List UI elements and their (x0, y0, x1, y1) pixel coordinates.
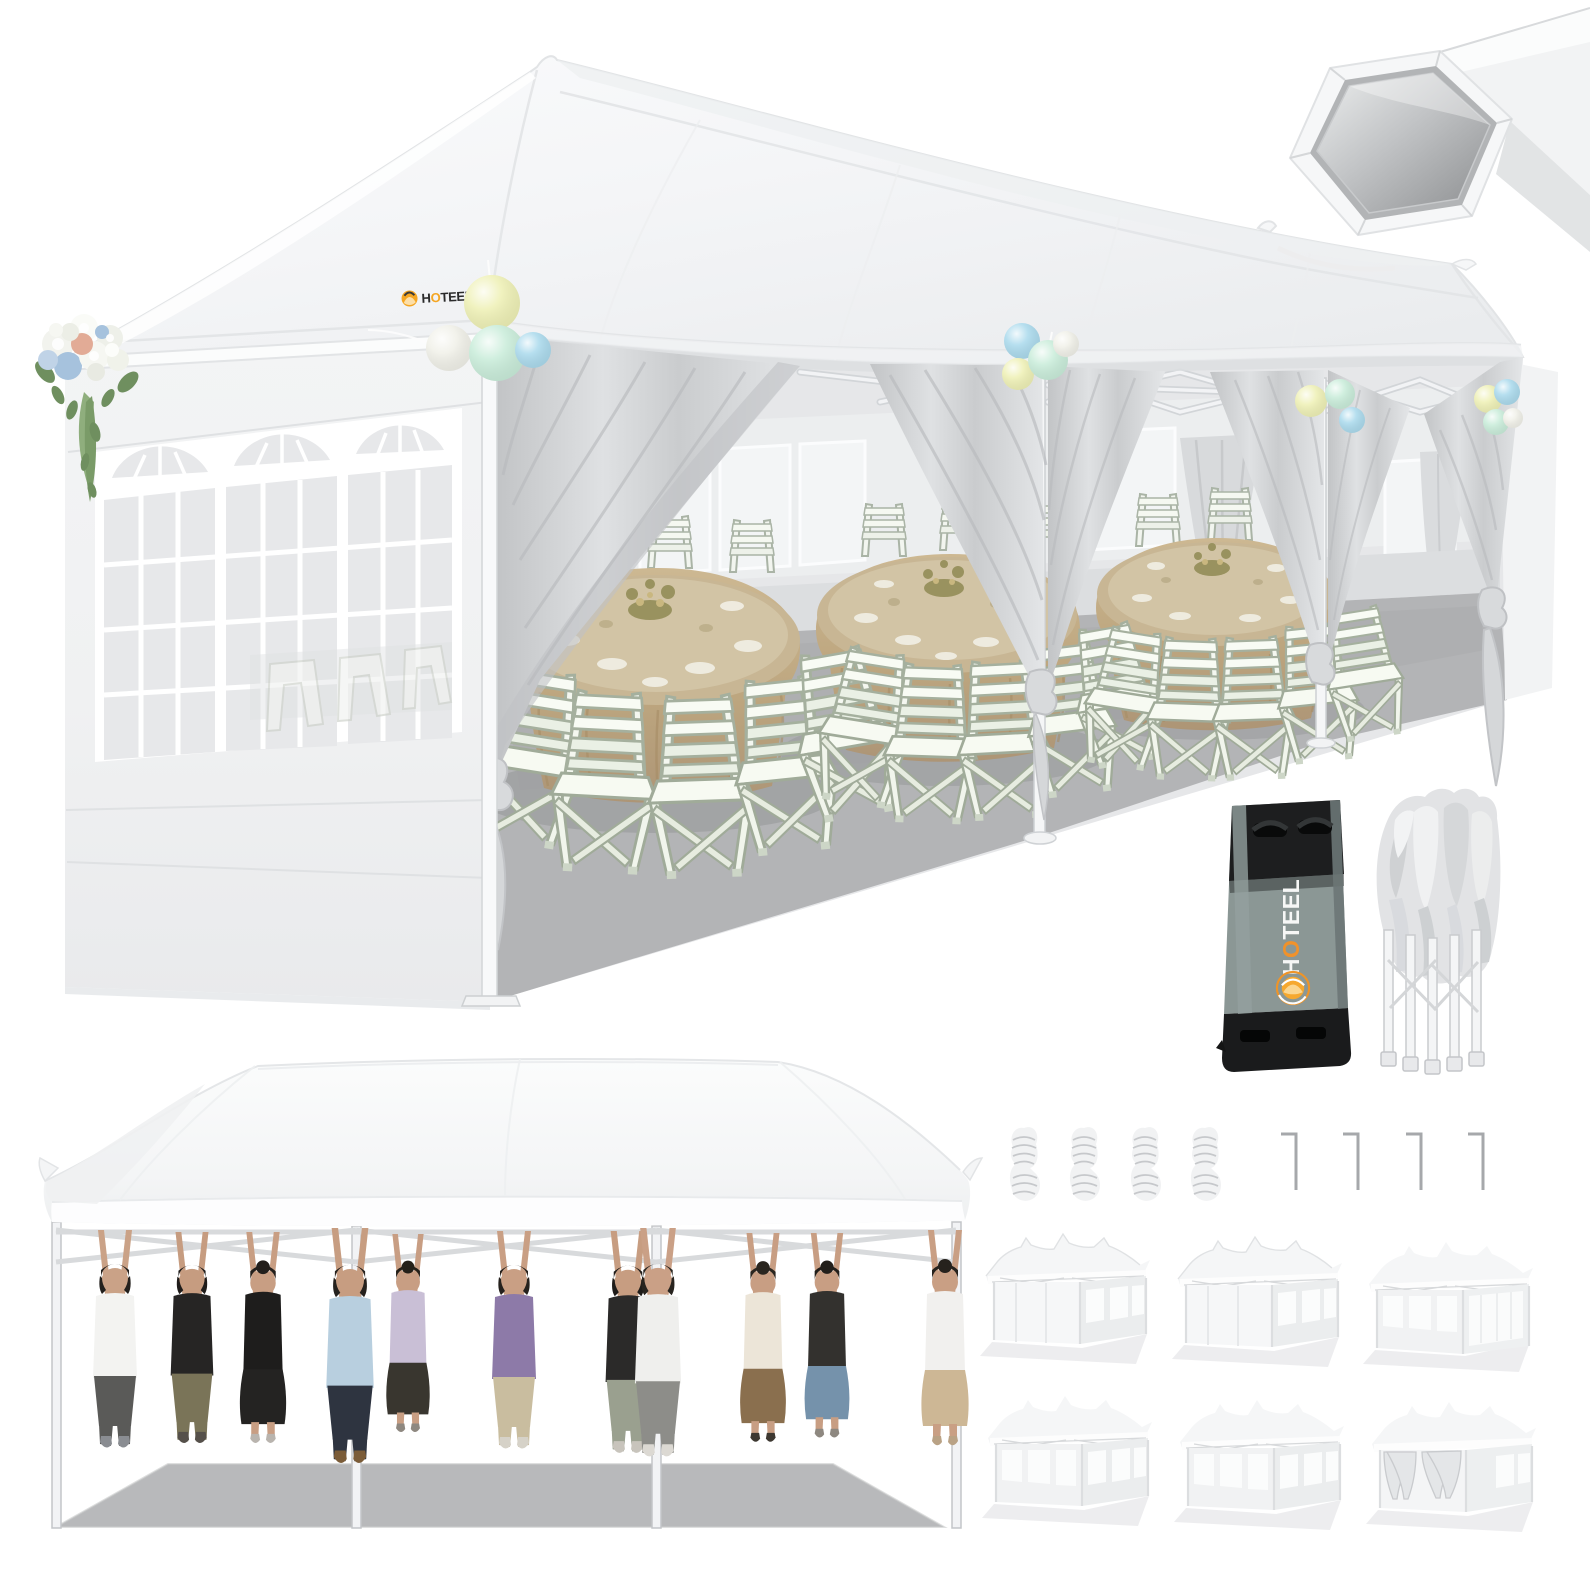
svg-text:HOTEEL: HOTEEL (1278, 879, 1304, 975)
